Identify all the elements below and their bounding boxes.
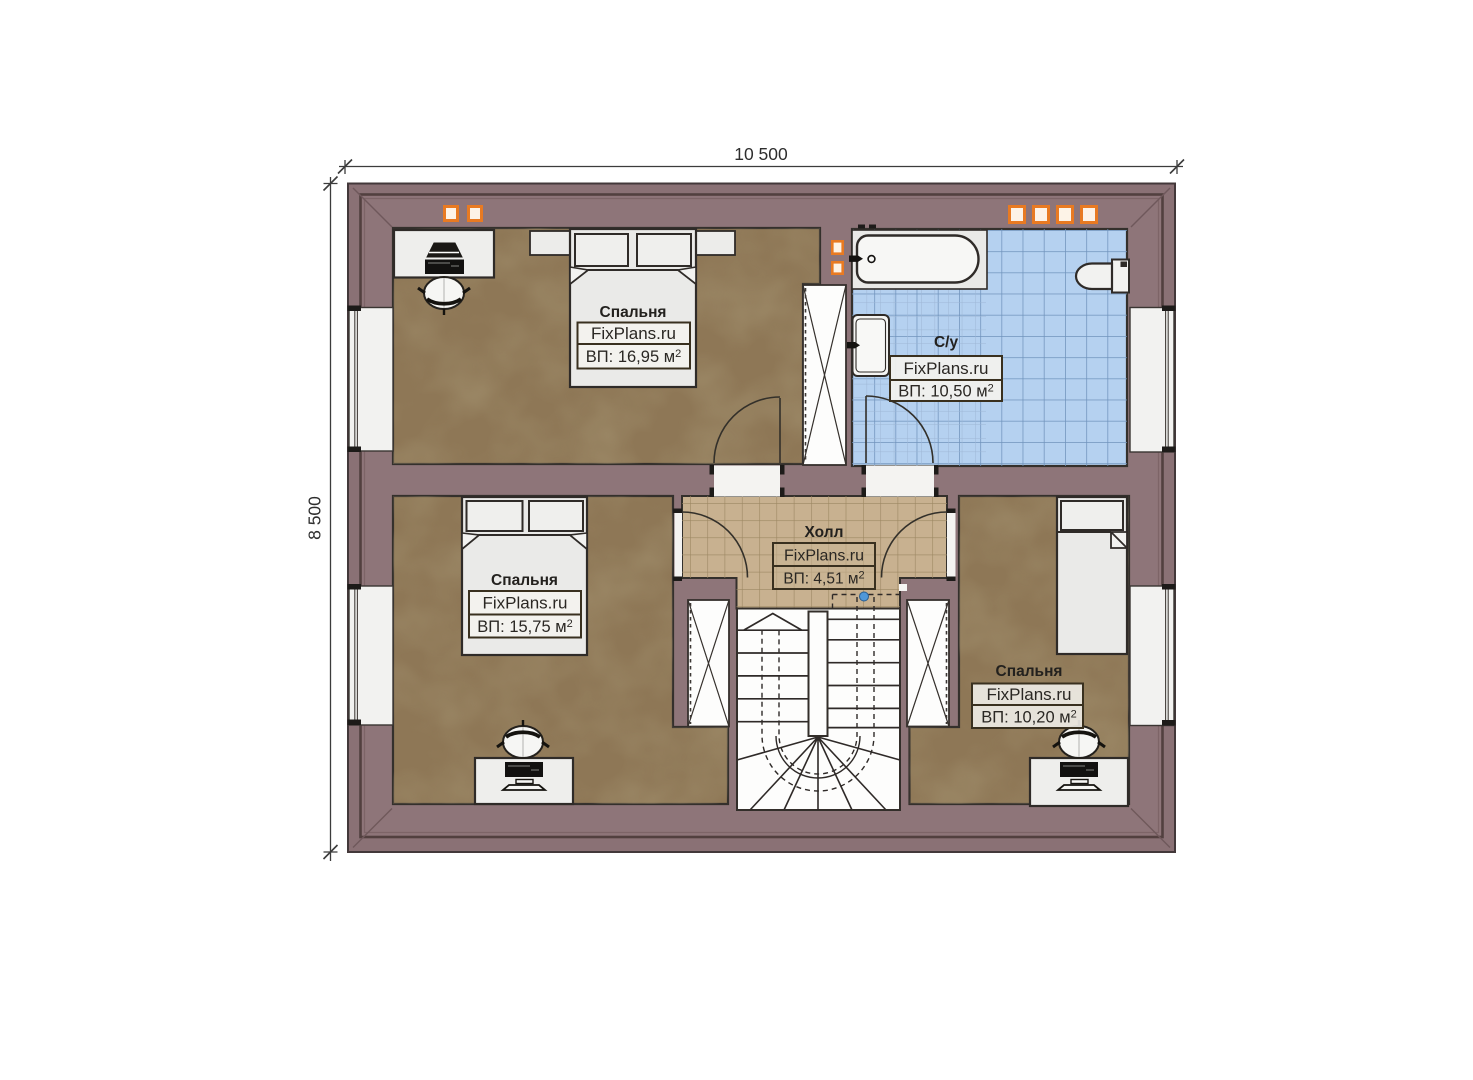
svg-text:Холл: Холл [805,524,844,541]
svg-text:ВП: 4,51 м2: ВП: 4,51 м2 [783,570,864,588]
svg-text:С/у: С/у [934,334,959,351]
svg-text:FixPlans.ru: FixPlans.ru [482,594,567,613]
svg-text:ВП: 10,50 м2: ВП: 10,50 м2 [898,383,993,401]
svg-text:FixPlans.ru: FixPlans.ru [903,359,988,378]
svg-text:ВП: 15,75 м2: ВП: 15,75 м2 [477,618,572,636]
svg-text:ВП: 16,95 м2: ВП: 16,95 м2 [586,348,681,366]
svg-text:ВП: 10,20 м2: ВП: 10,20 м2 [981,709,1076,727]
svg-text:FixPlans.ru: FixPlans.ru [986,685,1071,704]
svg-text:8 500: 8 500 [305,496,325,540]
svg-text:Спальня: Спальня [600,304,667,321]
svg-text:FixPlans.ru: FixPlans.ru [591,324,676,343]
svg-text:FixPlans.ru: FixPlans.ru [784,548,864,565]
svg-text:10 500: 10 500 [734,144,788,164]
svg-text:Спальня: Спальня [491,572,558,589]
svg-text:Спальня: Спальня [996,663,1063,680]
